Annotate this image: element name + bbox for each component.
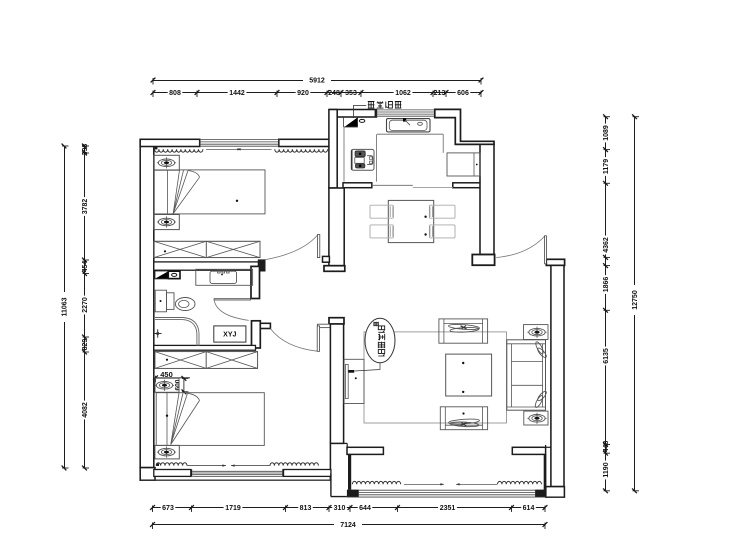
svg-text:673: 673: [162, 505, 174, 512]
svg-text:248: 248: [328, 90, 340, 97]
svg-text:808: 808: [169, 90, 181, 97]
svg-text:11063: 11063: [61, 297, 68, 316]
svg-text:XYJ: XYJ: [223, 332, 236, 339]
svg-text:7124: 7124: [340, 522, 356, 529]
svg-text:1866: 1866: [603, 277, 610, 293]
svg-text:2270: 2270: [82, 297, 89, 313]
svg-text:606: 606: [457, 90, 469, 97]
svg-text:2351: 2351: [440, 505, 456, 512]
svg-text:1179: 1179: [603, 159, 610, 174]
svg-text:829: 829: [82, 339, 89, 351]
svg-text:12750: 12750: [632, 290, 639, 310]
svg-text:1442: 1442: [229, 90, 245, 97]
svg-text:5912: 5912: [309, 78, 325, 85]
svg-text:4082: 4082: [82, 402, 89, 418]
svg-text:353: 353: [345, 90, 357, 97]
svg-text:1190: 1190: [603, 462, 610, 477]
svg-text:448: 448: [603, 441, 610, 453]
svg-text:600: 600: [174, 379, 181, 390]
svg-text:398: 398: [82, 144, 89, 156]
svg-text:3782: 3782: [82, 199, 89, 215]
svg-text:1062: 1062: [395, 90, 411, 97]
svg-text:614: 614: [523, 505, 535, 512]
svg-text:813: 813: [300, 505, 312, 512]
svg-text:1089: 1089: [603, 125, 610, 141]
svg-text:1719: 1719: [225, 505, 241, 512]
svg-text:213: 213: [434, 90, 446, 97]
svg-text:644: 644: [359, 505, 371, 512]
svg-text:310: 310: [334, 505, 346, 512]
svg-text:6135: 6135: [603, 348, 610, 364]
svg-text:454: 454: [82, 261, 89, 273]
svg-text:4362: 4362: [603, 237, 610, 253]
svg-text:920: 920: [297, 90, 309, 97]
